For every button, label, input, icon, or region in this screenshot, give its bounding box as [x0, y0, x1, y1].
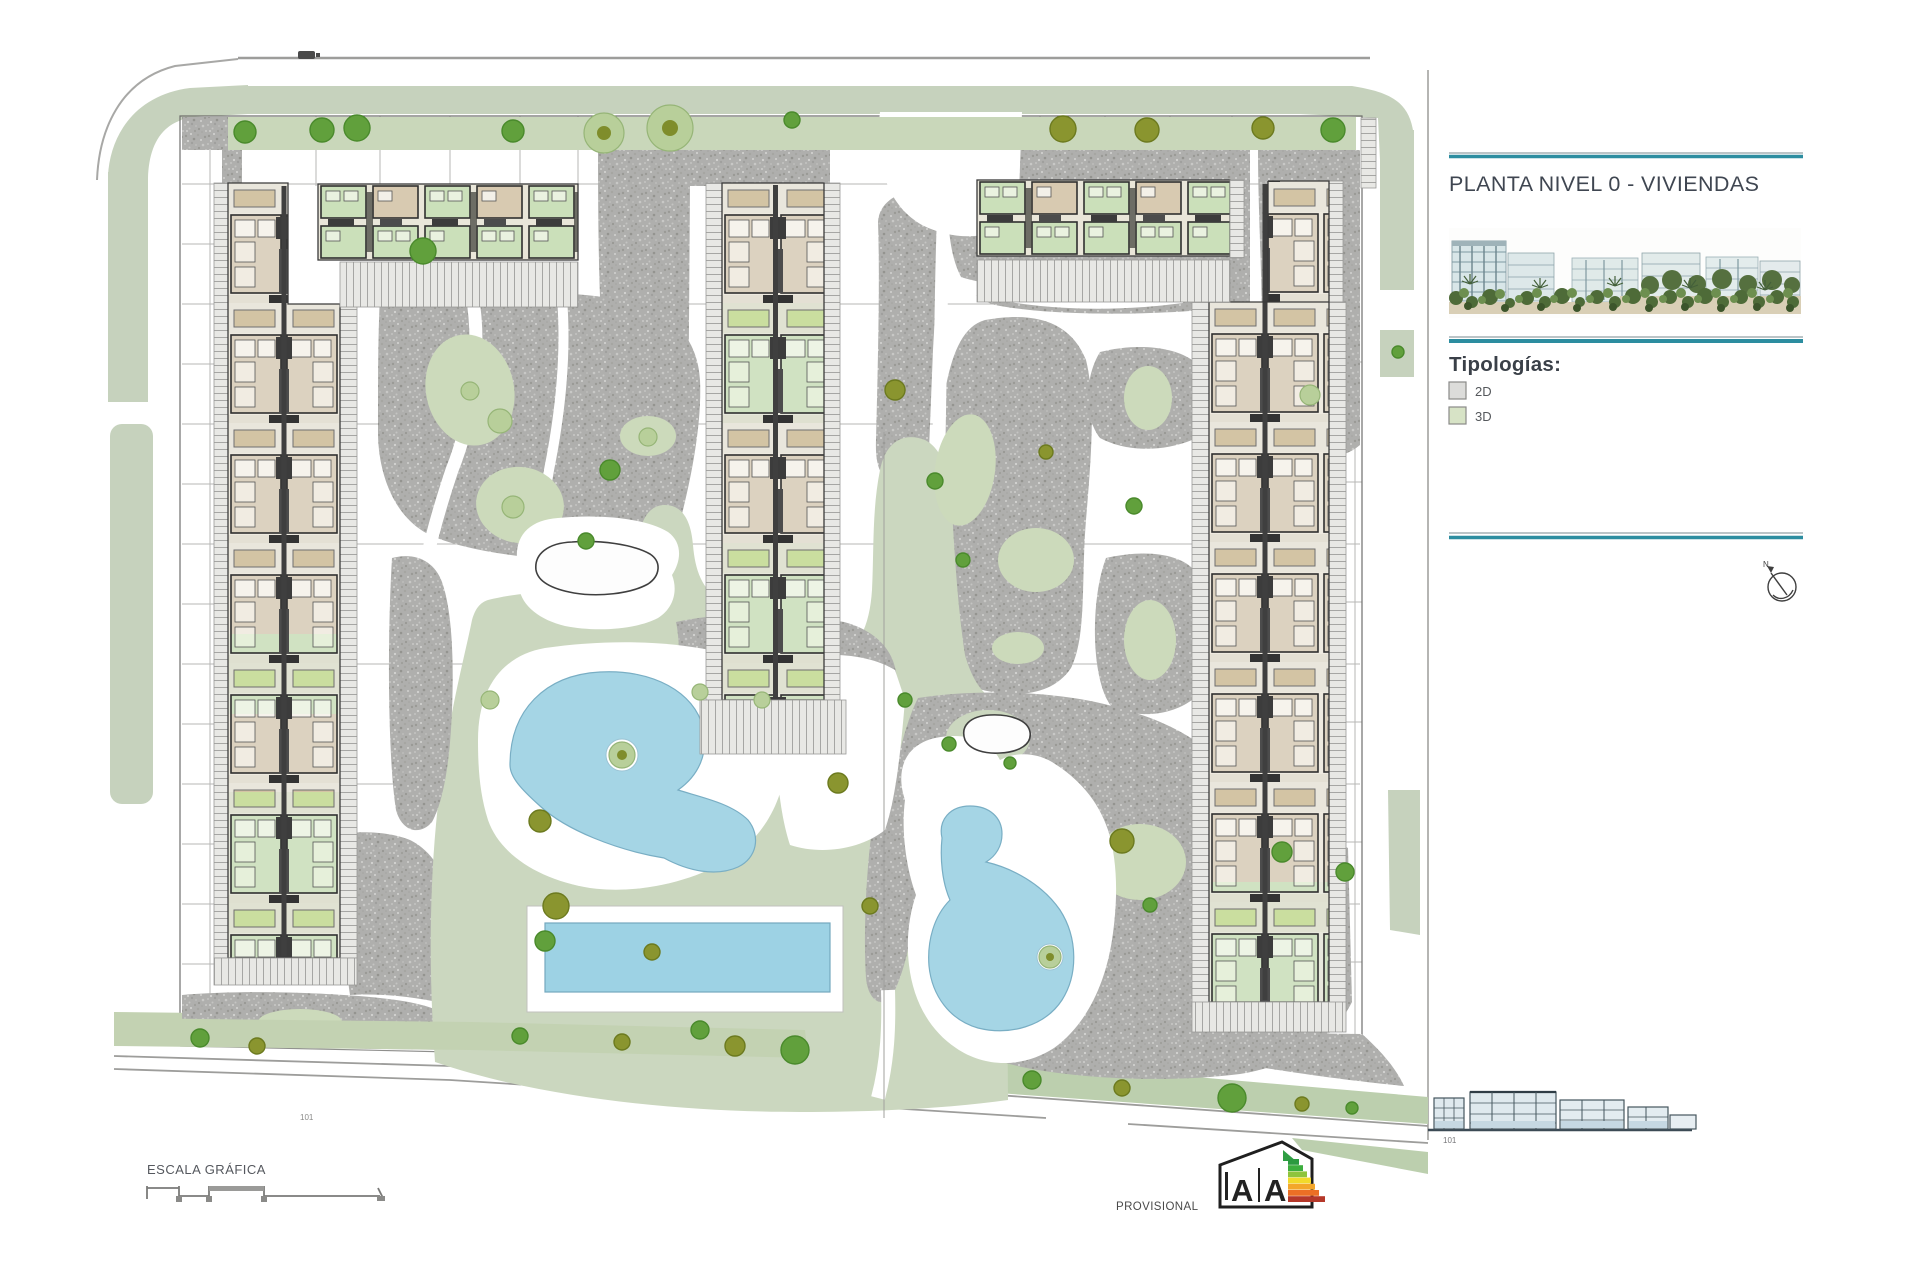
svg-text:N: N [1763, 560, 1769, 569]
svg-text:101: 101 [1443, 1136, 1457, 1145]
svg-text:101: 101 [300, 1113, 314, 1122]
svg-text:Tipologías:: Tipologías: [1449, 353, 1561, 376]
svg-text:ESCALA GRÁFICA: ESCALA GRÁFICA [147, 1162, 266, 1177]
svg-text:2D: 2D [1475, 384, 1492, 399]
svg-text:A: A [1264, 1173, 1286, 1208]
svg-text:3D: 3D [1475, 409, 1492, 424]
svg-text:A: A [1231, 1173, 1253, 1208]
svg-text:PROVISIONAL: PROVISIONAL [1116, 1201, 1199, 1213]
svg-text:PLANTA NIVEL 0 - VIVIENDAS: PLANTA NIVEL 0 - VIVIENDAS [1449, 172, 1759, 196]
